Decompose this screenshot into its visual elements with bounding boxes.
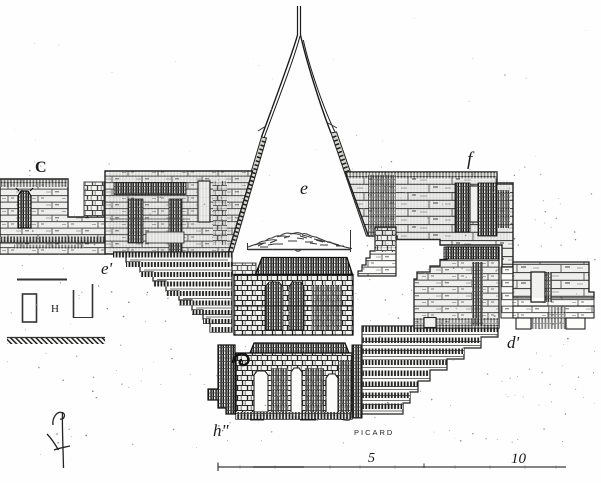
svg-text:5: 5 — [368, 451, 375, 466]
svg-text:d': d' — [507, 333, 520, 352]
svg-text:H: H — [51, 303, 59, 315]
svg-text:e': e' — [101, 259, 113, 278]
svg-text:10: 10 — [511, 451, 527, 467]
svg-text:h": h" — [213, 421, 230, 440]
svg-text:C: C — [35, 159, 47, 176]
svg-text:e: e — [300, 178, 308, 198]
svg-text:PICARD: PICARD — [354, 428, 394, 437]
